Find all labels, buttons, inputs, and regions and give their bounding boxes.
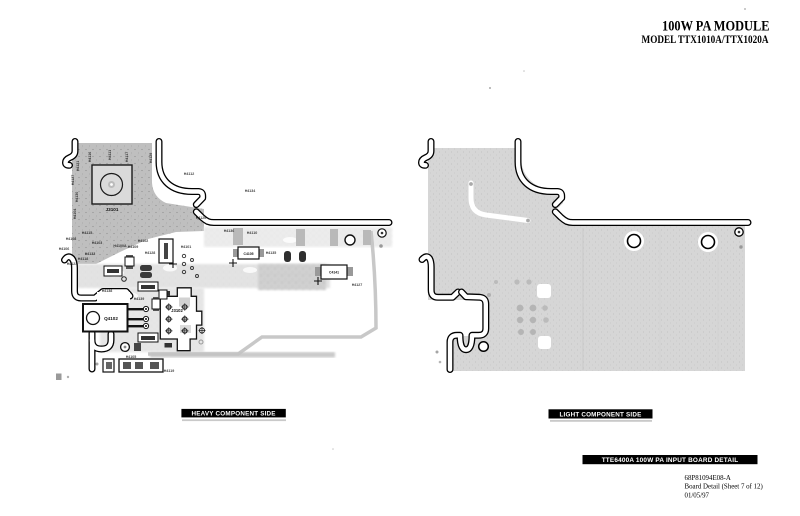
svg-text:MODEL TTX1010A/TTX1020A: MODEL TTX1010A/TTX1020A [642, 32, 769, 46]
svg-text:68P81094E08-A: 68P81094E08-A [685, 475, 731, 482]
svg-text:H4133: H4133 [85, 252, 96, 256]
svg-text:TTE6400A 100W PA INPUT BOARD: TTE6400A 100W PA INPUT BOARD DETAIL [602, 457, 739, 464]
svg-text:H4135: H4135 [266, 251, 277, 255]
svg-text:H4136: H4136 [224, 229, 235, 233]
svg-text:H4111: H4111 [108, 150, 112, 160]
svg-text:Q4102: Q4102 [104, 316, 118, 321]
svg-text:H4109: H4109 [128, 245, 139, 249]
svg-text:H4108: H4108 [66, 237, 77, 241]
svg-text:HEAVY COMPONENT SIDE: HEAVY COMPONENT SIDE [191, 410, 275, 417]
svg-text:J3102: J3102 [171, 308, 183, 313]
svg-text:H4110: H4110 [247, 231, 257, 235]
svg-text:H4115: H4115 [82, 231, 92, 235]
svg-text:H4138: H4138 [102, 289, 113, 293]
svg-text:J3101: J3101 [106, 207, 119, 212]
svg-text:H4121: H4121 [76, 161, 80, 172]
svg-text:H4126: H4126 [196, 216, 207, 220]
svg-text:H4128: H4128 [145, 251, 156, 255]
svg-text:H4116: H4116 [88, 152, 92, 162]
svg-text:C4105: C4105 [244, 252, 254, 256]
svg-text:H4127: H4127 [71, 175, 75, 186]
svg-text:H4105: H4105 [126, 355, 137, 359]
svg-text:H4139: H4139 [134, 297, 145, 301]
svg-text:H4101: H4101 [181, 245, 192, 249]
svg-text:H4102: H4102 [138, 239, 149, 243]
svg-text:H4118: H4118 [78, 257, 88, 261]
svg-text:Board Detail (Sheet 7 of 12): Board Detail (Sheet 7 of 12) [685, 484, 763, 491]
svg-text:H4112: H4112 [184, 172, 194, 176]
svg-text:C4141: C4141 [329, 271, 339, 275]
svg-text:LIGHT COMPONENT SIDE: LIGHT COMPONENT SIDE [559, 411, 641, 418]
svg-text:H4134: H4134 [245, 189, 256, 193]
svg-text:H4129: H4129 [149, 153, 153, 164]
svg-text:H4103: H4103 [92, 241, 103, 245]
svg-text:H4130: H4130 [75, 192, 79, 203]
svg-text:H4117: H4117 [125, 152, 129, 162]
svg-text:H4127: H4127 [352, 283, 363, 287]
svg-text:01/05/97: 01/05/97 [685, 492, 710, 499]
svg-text:H4106: H4106 [59, 247, 70, 251]
svg-text:H4123: H4123 [67, 262, 78, 266]
svg-text:H4100A: H4100A [113, 244, 127, 248]
svg-text:H4119: H4119 [164, 369, 174, 373]
svg-text:H4104: H4104 [73, 209, 77, 220]
